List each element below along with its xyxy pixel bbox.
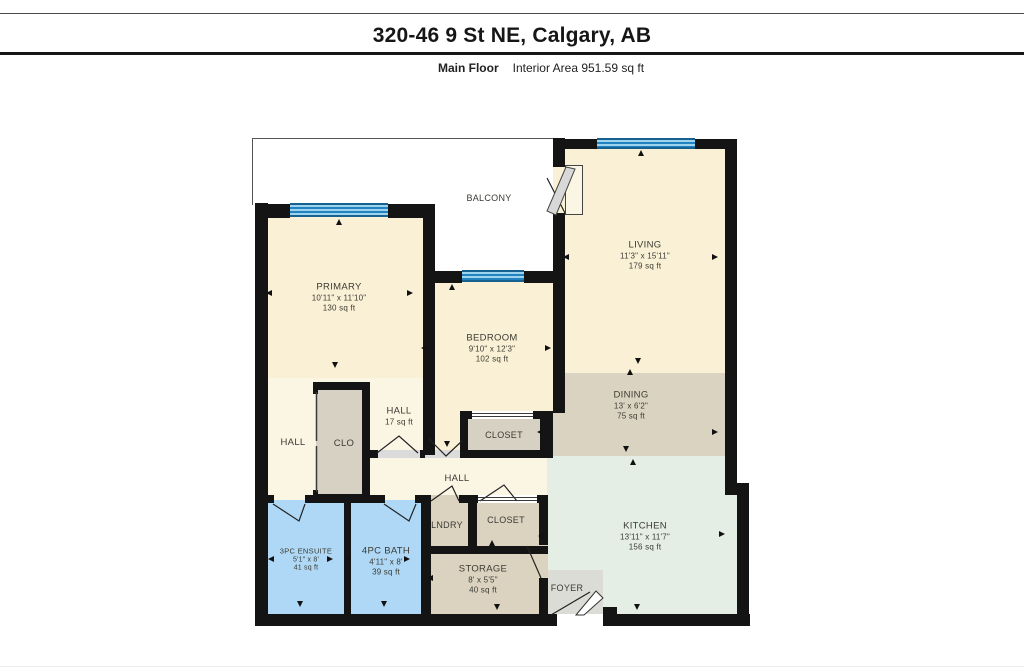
- room-label-hall-closet: CLOSET: [487, 515, 525, 526]
- dim-arrow-living-right: [712, 254, 718, 260]
- wall-storage-right-lower: [539, 578, 548, 615]
- room-name: FOYER: [551, 583, 584, 594]
- dim-arrow-storage-down: [494, 604, 500, 610]
- wall-bedroom-right: [553, 271, 565, 413]
- room-name: CLOSET: [487, 515, 525, 526]
- room-name: CLO: [334, 439, 354, 450]
- dim-arrow-bedroom-right: [545, 345, 551, 351]
- room-name: DINING: [613, 390, 648, 401]
- floor-plan-page: 320-46 9 St NE, Calgary, AB Main FloorIn…: [0, 0, 1024, 669]
- dim-arrow-dining-down: [623, 446, 629, 452]
- wall-closetrow-bottom: [421, 546, 548, 554]
- room-label-ensuite: 3PC ENSUITE 5'1" x 8' 41 sq ft: [280, 547, 332, 573]
- dim-arrow-primary-left: [266, 290, 272, 296]
- dim-arrow-primary-right: [407, 290, 413, 296]
- wall-balcony-right-lower: [553, 213, 565, 271]
- room-name: HALL: [445, 474, 470, 485]
- dim-arrow-kitchen-right: [719, 531, 725, 537]
- wall-left-exterior: [255, 203, 268, 626]
- room-dims: 4'11" x 8': [362, 557, 410, 568]
- dim-arrow-ensuite-left: [268, 556, 274, 562]
- wall-clo-left-stub-top: [313, 382, 318, 394]
- room-label-foyer: FOYER: [551, 583, 584, 594]
- wall-bedroom-left: [423, 204, 435, 455]
- room-label-storage: STORAGE 8' x 5'5" 40 sq ft: [459, 564, 507, 596]
- room-dims: 13'11" x 11'7": [620, 532, 670, 543]
- dim-arrow-kitchen-left: [538, 533, 544, 539]
- dim-arrow-storage-left: [427, 575, 433, 581]
- room-name: PRIMARY: [312, 282, 367, 293]
- balcony-door-frame: [565, 165, 583, 215]
- wall-entry-jamb: [603, 607, 617, 615]
- dim-arrow-dining-left: [537, 429, 543, 435]
- room-label-dining: DINING 13' x 6'2" 75 sq ft: [613, 390, 648, 422]
- wall-bedroom-closet-top-r: [533, 411, 548, 419]
- room-name: KITCHEN: [620, 521, 670, 532]
- wall-bottom-left: [255, 614, 557, 626]
- room-label-bath: 4PC BATH 4'11" x 8' 39 sq ft: [362, 546, 410, 578]
- balcony-outline-top: [252, 138, 553, 139]
- wall-bath-storage-divider: [421, 495, 431, 615]
- wall-ensuite-bath-divider: [344, 495, 351, 615]
- dim-arrow-kitchen-down: [634, 604, 640, 610]
- room-label-laundry: LNDRY: [431, 520, 463, 531]
- dim-arrow-bath-down: [381, 601, 387, 607]
- dim-arrow-bedroom-left: [421, 345, 427, 351]
- room-label-balcony: BALCONY: [466, 193, 511, 204]
- dim-arrow-dining-right: [712, 429, 718, 435]
- dim-arrow-living-down: [635, 358, 641, 364]
- room-name: LIVING: [620, 240, 670, 251]
- dim-arrow-living-up: [638, 150, 644, 156]
- room-name: CLOSET: [485, 430, 523, 441]
- room-area: 41 sq ft: [280, 564, 332, 573]
- wall-bedroom-bottom-c: [464, 450, 548, 458]
- wall-bathrow-top-a: [266, 495, 274, 503]
- wall-balcony-right-upper: [553, 138, 565, 167]
- dim-arrow-bedroom-up: [449, 284, 455, 290]
- room-label-hall-main: HALL 17 sq ft: [385, 407, 413, 428]
- wall-laundry-right: [468, 495, 477, 548]
- room-label-kitchen: KITCHEN 13'11" x 11'7" 156 sq ft: [620, 521, 670, 553]
- dim-arrow-bath-left: [345, 556, 351, 562]
- wall-clo-right: [362, 382, 370, 502]
- dim-arrow-primary-up: [336, 219, 342, 225]
- room-label-hall-lower: HALL: [445, 474, 470, 485]
- room-area: 40 sq ft: [459, 585, 507, 596]
- wall-top-living-right: [695, 139, 737, 149]
- threshold-hall-door: [378, 450, 420, 458]
- dim-arrow-ensuite-right: [327, 556, 333, 562]
- room-dims: 13' x 6'2": [613, 401, 648, 412]
- room-name: LNDRY: [431, 520, 463, 531]
- room-area: 156 sq ft: [620, 542, 670, 553]
- room-name: 3PC ENSUITE: [280, 547, 332, 556]
- wall-right-upper: [725, 139, 737, 495]
- dim-arrow-dining-up: [627, 369, 633, 375]
- wall-bedroom-bottom-b: [420, 450, 425, 458]
- room-area: 39 sq ft: [362, 567, 410, 578]
- dim-arrow-living-left: [563, 254, 569, 260]
- room-area: 17 sq ft: [385, 417, 413, 428]
- floor-plan: BALCONY PRIMARY 10'11" x 11'10" 130 sq f…: [0, 0, 1024, 669]
- wall-primary-top-left: [255, 204, 290, 218]
- dim-arrow-primary-down: [332, 362, 338, 368]
- room-label-bedroom-closet: CLOSET: [485, 430, 523, 441]
- room-label-bedroom: BEDROOM 9'10" x 12'3" 102 sq ft: [466, 333, 517, 365]
- wall-right-lower: [737, 483, 749, 626]
- room-area: 130 sq ft: [312, 303, 367, 314]
- dim-arrow-storage-up: [489, 540, 495, 546]
- dim-arrow-ensuite-down: [297, 601, 303, 607]
- wall-bottom-right: [603, 614, 750, 626]
- room-name: HALL: [281, 438, 306, 449]
- room-dims: 10'11" x 11'10": [312, 293, 367, 304]
- room-area: 75 sq ft: [613, 411, 648, 422]
- room-name: STORAGE: [459, 564, 507, 575]
- room-dims: 8' x 5'5": [459, 575, 507, 586]
- room-area: 179 sq ft: [620, 261, 670, 272]
- room-dims: 9'10" x 12'3": [466, 344, 517, 355]
- room-label-living: LIVING 11'3" x 15'11" 179 sq ft: [620, 240, 670, 272]
- bedroom-closet-slider: [472, 411, 533, 419]
- room-name: HALL: [385, 407, 413, 418]
- dim-arrow-bath-right: [404, 556, 410, 562]
- living-window: [597, 138, 695, 149]
- balcony-floor-lower: [423, 205, 553, 271]
- room-label-clo: CLO: [334, 439, 354, 450]
- primary-window: [290, 203, 388, 217]
- room-area: 102 sq ft: [466, 354, 517, 365]
- hall-closet-slider: [478, 495, 537, 503]
- room-dims: 5'1" x 8': [280, 556, 332, 565]
- bedroom-window: [462, 270, 524, 282]
- room-label-hall-left: HALL: [281, 438, 306, 449]
- room-name: BEDROOM: [466, 333, 517, 344]
- room-label-primary: PRIMARY 10'11" x 11'10" 130 sq ft: [312, 282, 367, 314]
- room-dims: 11'3" x 15'11": [620, 251, 670, 262]
- balcony-outline-left: [252, 138, 253, 205]
- dim-arrow-bedroom-down: [444, 441, 450, 447]
- dim-arrow-kitchen-up: [630, 459, 636, 465]
- room-name: 4PC BATH: [362, 546, 410, 557]
- room-name: BALCONY: [466, 193, 511, 204]
